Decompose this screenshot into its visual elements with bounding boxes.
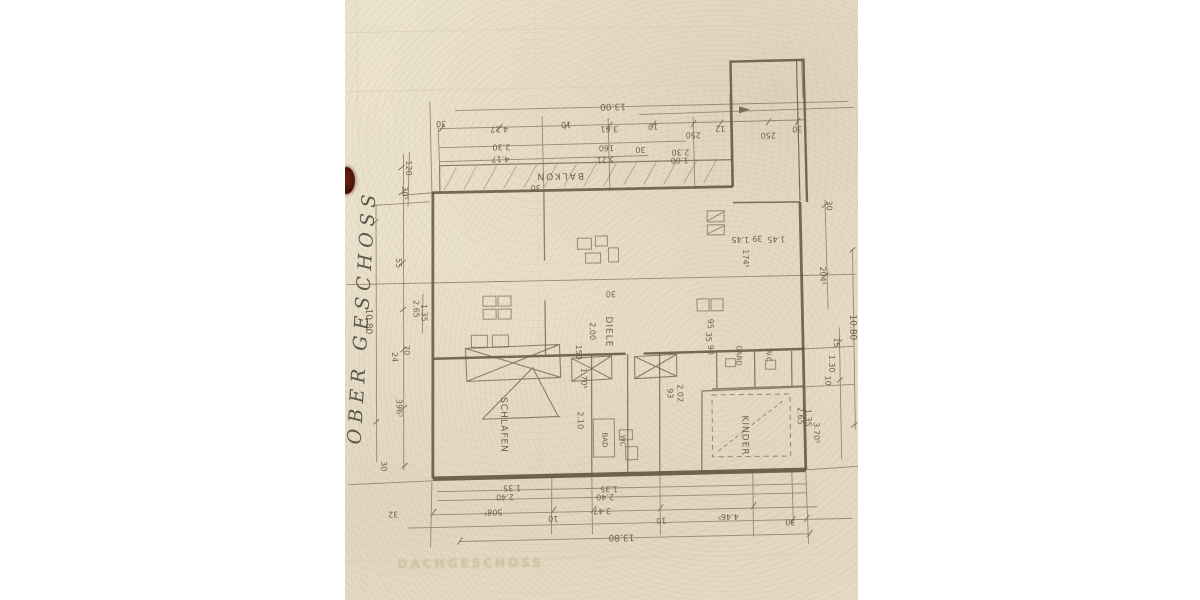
dimension-label: 1.30: [827, 355, 836, 373]
dimension-label: 55: [394, 258, 403, 268]
dimension-label: 3.61: [600, 124, 618, 133]
dimension-label: 32: [388, 510, 398, 519]
room-label: WC: [618, 435, 626, 447]
dimension-label: 1.45: [731, 235, 749, 244]
dimension-label: 1.35: [420, 304, 429, 322]
dimension-label: 150: [574, 345, 583, 360]
room-label: KINDER: [739, 415, 749, 455]
faded-floor-label: DACHGESCHOSS: [386, 555, 556, 571]
dimension-label: 30: [606, 289, 616, 298]
dimension-label: 2.02: [675, 384, 684, 402]
plan-layer: 13.00304.27103.611025012250302.30160302.…: [345, 0, 858, 600]
room-label: BAD: [600, 432, 608, 447]
dimension-label: 10: [656, 516, 666, 525]
dimension-label: 204⁵: [818, 266, 827, 285]
dimension-label: 2.00: [588, 322, 597, 340]
dimension-label: 35: [704, 332, 713, 342]
dimension-label: 10.80: [847, 314, 857, 340]
dimension-label: 250: [686, 130, 701, 139]
dimension-label: 2.40: [496, 492, 514, 501]
dimension-label: 3.21: [597, 155, 615, 164]
dimension-label: 160: [599, 143, 614, 152]
dimension-label: 95: [706, 319, 715, 329]
dimension-label: 3.70⁵: [812, 422, 821, 443]
dimension-label: 93: [665, 388, 674, 398]
dimension-label: 30: [635, 145, 645, 154]
dimension-label: 30: [824, 200, 833, 210]
dimension-label: 396⁵: [395, 399, 404, 418]
dimension-label: 30: [531, 183, 541, 192]
dimension-label: 3.47: [593, 506, 611, 515]
scanned-floorplan-photo: 13.00304.27103.611025012250302.30160302.…: [0, 0, 1200, 600]
dimension-label: 1.70⁵: [579, 368, 588, 389]
room-label: DIELE: [603, 316, 613, 347]
dimension-label: 12: [715, 124, 725, 133]
dimension-label: 30: [379, 461, 388, 471]
dimension-label: 4.17: [492, 154, 510, 163]
dimension-label: 2.10: [576, 411, 585, 429]
dimension-label: 24: [390, 352, 399, 362]
room-label: W.C: [765, 349, 773, 362]
dimension-label: 2.40: [596, 492, 614, 501]
dimension-label: 10: [561, 120, 571, 129]
dimension-label: 1.35: [503, 483, 521, 492]
dimension-label: 4.27: [490, 124, 508, 133]
room-label: GARD: [734, 345, 742, 366]
dimension-label: 39: [752, 234, 762, 243]
dimension-label: 70: [402, 345, 411, 355]
room-label: BALKON: [535, 170, 584, 181]
dimension-label: 15: [832, 337, 841, 347]
dimension-label: 30⁵: [400, 186, 409, 199]
dimension-label: 90: [706, 345, 715, 355]
dimension-label: 508⁵: [484, 508, 503, 517]
dimension-label: 4.46⁵: [718, 512, 739, 521]
dimension-label: 2.30: [492, 142, 510, 151]
dimension-label: 120: [404, 160, 413, 175]
dimension-label: 1.45: [767, 235, 785, 244]
dimension-label: 10: [648, 122, 658, 131]
plan-annotations: 13.00304.27103.611025012250302.30160302.…: [345, 0, 858, 600]
dimension-label: 30: [792, 124, 802, 133]
dimension-label: 13.00: [600, 101, 626, 111]
dimension-label: 30: [436, 119, 446, 128]
dimension-label: 10: [548, 514, 558, 523]
dimension-label: 13.80: [609, 532, 635, 542]
dimension-label: 30: [785, 517, 795, 526]
dimension-label: 1.00: [671, 156, 689, 165]
dimension-label: 10: [823, 375, 832, 385]
dimension-label: 250: [761, 131, 776, 140]
blueprint-paper: 13.00304.27103.611025012250302.30160302.…: [345, 0, 858, 600]
dimension-label: 174⁵: [741, 249, 750, 268]
room-label: SCHLAFEN: [498, 397, 509, 453]
